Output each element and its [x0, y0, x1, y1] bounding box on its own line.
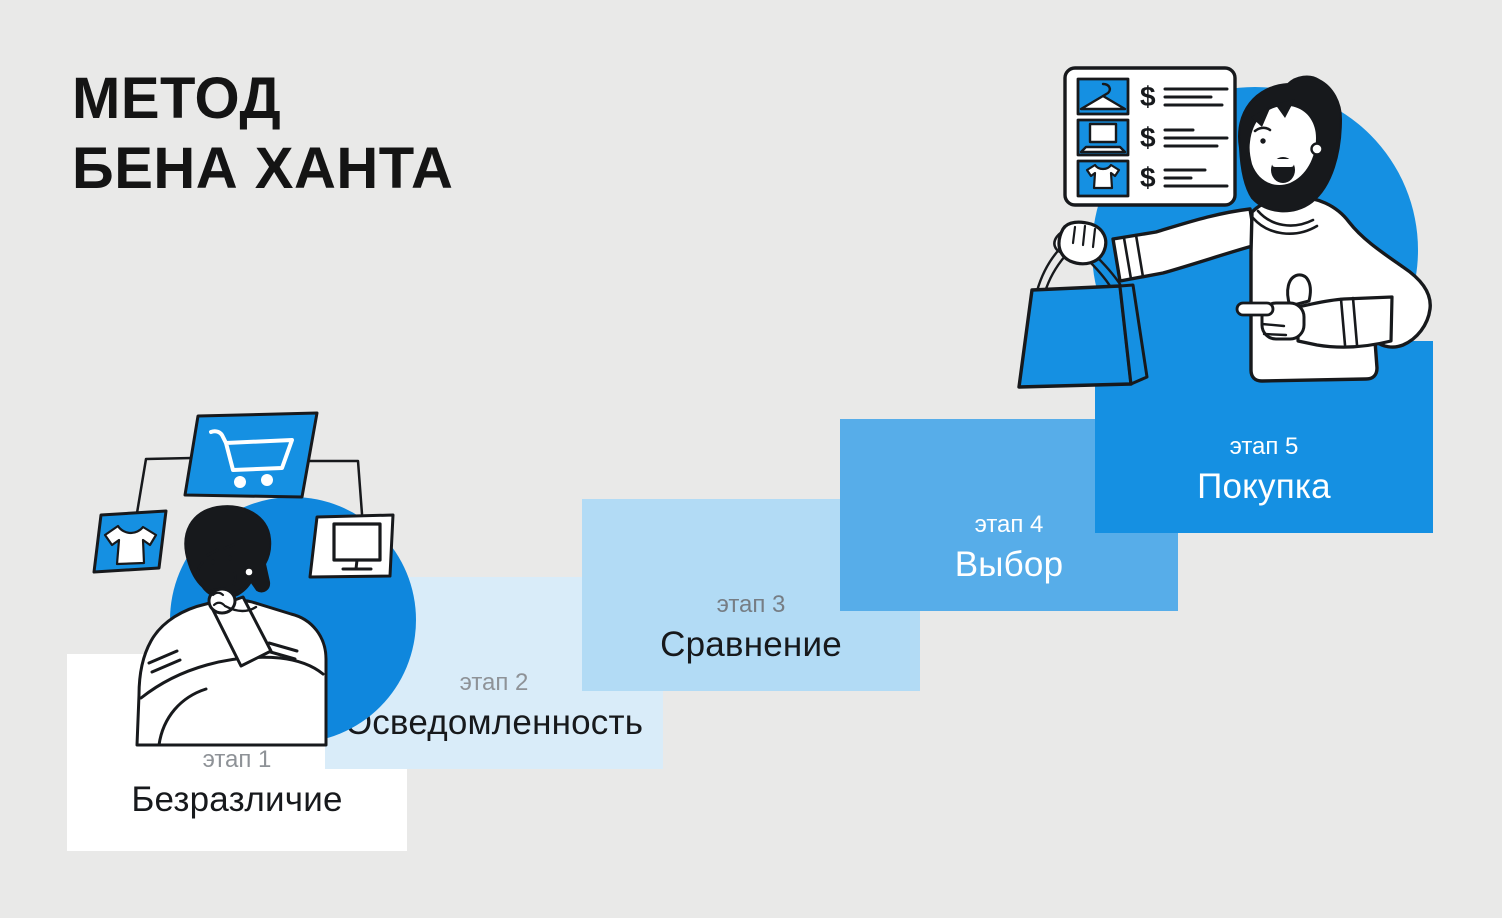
- shopping-cart-icon: [185, 413, 317, 497]
- monitor-icon: [310, 515, 393, 577]
- page-title: МЕТОД БЕНА ХАНТА: [72, 64, 453, 204]
- tshirt-icon: [94, 511, 166, 572]
- person-ear: [1312, 144, 1323, 155]
- happy-person-illustration: $ $ $: [1005, 58, 1450, 420]
- dollar-sign: $: [1140, 81, 1156, 112]
- step-4-label: этап 4: [975, 511, 1044, 539]
- person-teeth: [1272, 159, 1294, 167]
- step-3-label: этап 3: [717, 591, 786, 619]
- dollar-sign: $: [1140, 122, 1156, 153]
- person-index-finger: [1237, 303, 1273, 315]
- dollar-sign: $: [1140, 162, 1156, 193]
- step-3-title: Сравнение: [660, 625, 842, 665]
- step-5-title: Покупка: [1197, 467, 1331, 507]
- thinking-person-illustration: [60, 398, 440, 848]
- shopping-bag-icon: [1019, 285, 1147, 387]
- page-title-line1: МЕТОД: [72, 64, 453, 134]
- person-hair: [185, 506, 270, 595]
- price-list-card: $ $ $: [1065, 68, 1235, 205]
- person-ear: [245, 568, 254, 577]
- step-5-label: этап 5: [1230, 433, 1299, 461]
- step-2-label: этап 2: [460, 669, 529, 697]
- page-title-line2: БЕНА ХАНТА: [72, 134, 453, 204]
- person-thumb: [1288, 275, 1311, 306]
- infographic-canvas: МЕТОД БЕНА ХАНТА этап 1 Безразличие этап…: [0, 0, 1502, 918]
- person-arm-left: [1113, 209, 1256, 281]
- step-4-title: Выбор: [955, 545, 1063, 585]
